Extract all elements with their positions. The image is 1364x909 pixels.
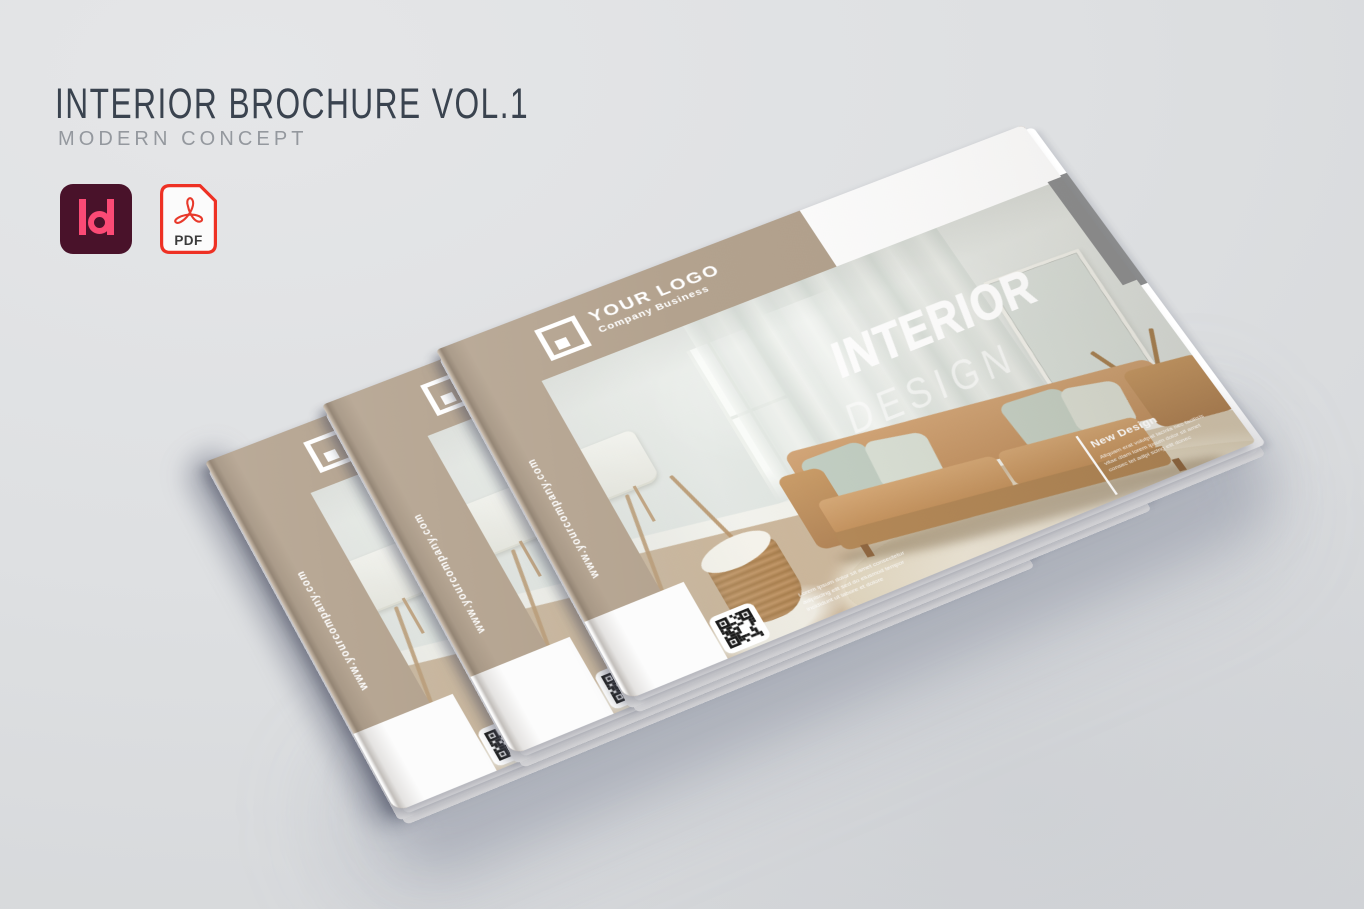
svg-text:PDF: PDF [174,233,202,248]
